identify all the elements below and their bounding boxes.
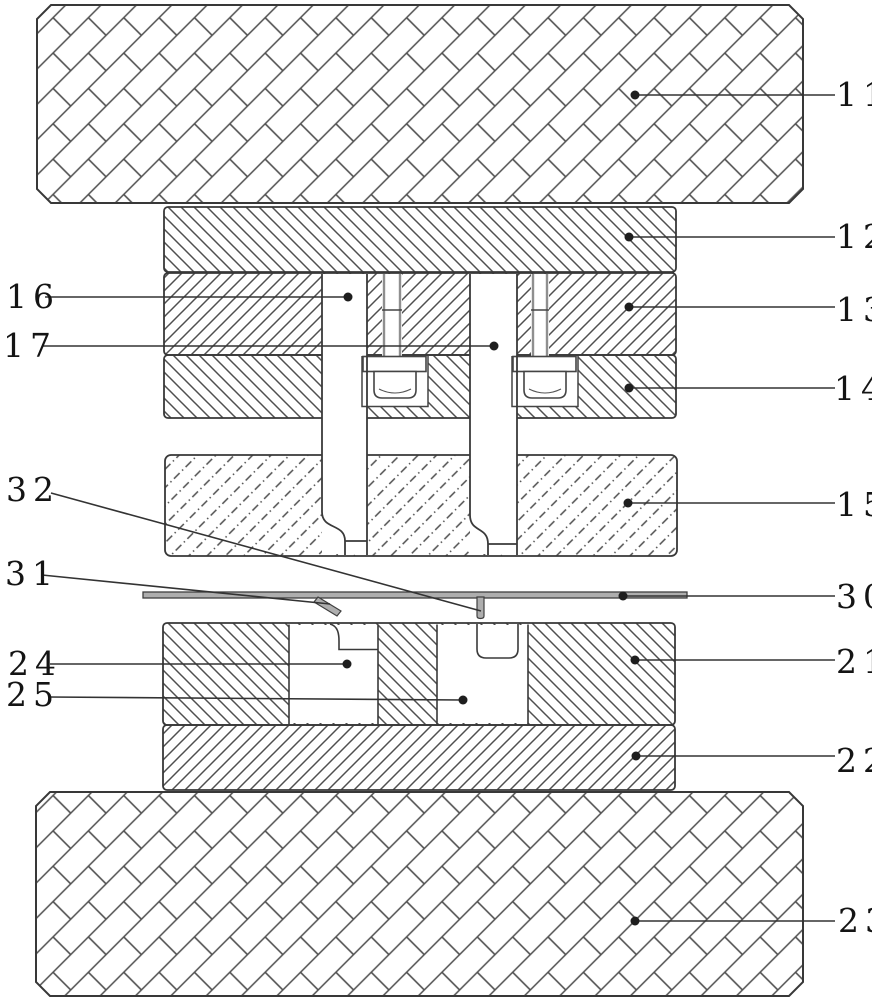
part-11-top-clamp-block: [37, 5, 803, 203]
leader-dot-24: [343, 660, 352, 669]
leader-dot-11: [631, 91, 640, 100]
leader-dot-12: [625, 233, 634, 242]
patent-figure: 11 12 13 14 15 30 21 22 23 16 17 32 31 2…: [0, 0, 872, 1000]
screw-head-cup: [524, 372, 566, 399]
leader-dot-17: [490, 342, 499, 351]
leader-dot-25: [459, 696, 468, 705]
callout-22: 22: [836, 743, 872, 779]
callout-17: 17: [3, 328, 57, 364]
leader-dot-22: [632, 752, 641, 761]
callout-16: 16: [6, 279, 60, 315]
leader-dot-14: [625, 384, 634, 393]
callout-23: 23: [838, 903, 872, 939]
part-15-stripper-block: [165, 440, 677, 556]
leader-dot-21: [631, 656, 640, 665]
screw-head-flange: [363, 357, 426, 372]
part-24-die-insert: [289, 625, 378, 723]
callout-13: 13: [836, 292, 872, 328]
part-21-die-plate: [163, 623, 675, 725]
leader-dot-16: [344, 293, 353, 302]
callout-31: 31: [5, 556, 59, 592]
part-25-die-insert: [437, 625, 528, 723]
callout-14: 14: [834, 371, 872, 407]
screw-head-flange: [513, 357, 576, 372]
callout-11: 11: [836, 77, 872, 113]
callout-25: 25: [6, 677, 60, 713]
die-assembly-drawing: [0, 0, 872, 1000]
callout-30: 30: [836, 579, 872, 615]
part-12-upper-backing-plate: [164, 207, 676, 272]
callout-15: 15: [836, 487, 872, 523]
part-23-bottom-clamp-block: [36, 792, 803, 996]
part-31-bent-tab: [314, 597, 341, 616]
leader-dot-15: [624, 499, 633, 508]
callout-21: 21: [836, 644, 872, 680]
part-22-lower-backing-plate: [163, 725, 675, 790]
leader-dot-23: [631, 917, 640, 926]
part-13-punch-holder-plate: [164, 273, 676, 355]
leader-31: [42, 575, 330, 604]
leader-dot-13: [625, 303, 634, 312]
callout-12: 12: [836, 219, 872, 255]
screw-head-cup: [374, 372, 416, 399]
leader-dot-30: [619, 592, 628, 601]
callout-32: 32: [6, 472, 60, 508]
part-32-bent-tab: [477, 597, 484, 619]
